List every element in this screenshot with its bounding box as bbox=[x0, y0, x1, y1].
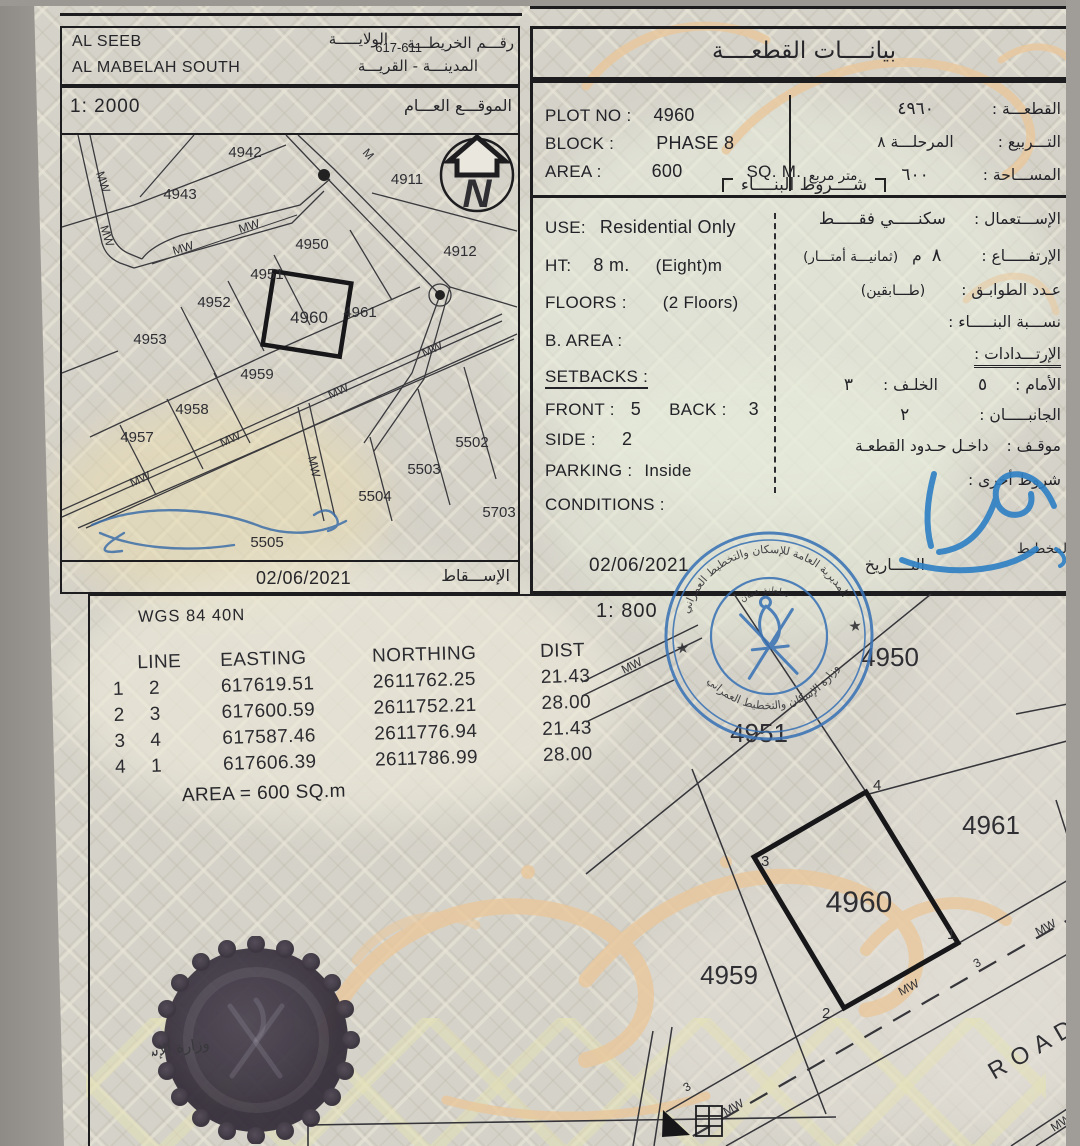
road-label: MW bbox=[1033, 916, 1059, 939]
embossed-seal: وزارة الإسكان bbox=[152, 936, 360, 1144]
site-map-scale: 1: 2000 bbox=[70, 96, 140, 118]
outer-border-top-right bbox=[530, 6, 1078, 9]
plot-label: 5703 bbox=[482, 504, 515, 521]
city-name-en: AL MABELAH SOUTH bbox=[72, 59, 240, 77]
scan-edge-right bbox=[1066, 0, 1080, 1146]
plot-label: 4958 bbox=[175, 401, 208, 418]
location-header-box: AL SEEB الولايـــــة 617-611 رقـــم الخر… bbox=[60, 26, 520, 86]
stamp-star-right: ★ bbox=[848, 617, 863, 635]
front-back-row-ar: الأمام :٥الخلـف :٣ bbox=[783, 375, 1061, 395]
parking-row-en: PARKING :Inside bbox=[545, 461, 815, 481]
scan-edge-top bbox=[0, 0, 1080, 6]
use-value: Residential Only bbox=[600, 217, 736, 237]
use-row-en: USE:Residential Only bbox=[545, 217, 815, 238]
plot-label: 5502 bbox=[455, 434, 488, 451]
site-map-title-ar: الموقـــع العـــام bbox=[404, 96, 512, 115]
use-row-ar: الإســـتعمال :سكنـــــي فقـــــط bbox=[783, 209, 1061, 228]
front-back-row-en: FRONT :5BACK :3 bbox=[545, 399, 815, 420]
road-label: MW bbox=[896, 976, 922, 999]
plot-label-4960: 4960 bbox=[290, 308, 328, 327]
outer-border-top-left bbox=[60, 13, 522, 16]
road-label: MW bbox=[97, 224, 117, 249]
wilaya-name-en: AL SEEB bbox=[72, 33, 142, 51]
plot-no-value: 4960 bbox=[653, 105, 694, 125]
road-label: MW bbox=[619, 654, 645, 676]
scanned-krooki-certificate: { "header_left": { "wilaya_en": "AL SEEB… bbox=[0, 0, 1080, 1146]
oman-emblem-icon bbox=[739, 594, 799, 678]
projection-date: 02/06/2021 bbox=[256, 568, 351, 589]
ht-row-en: HT:8 m.(Eight)m bbox=[545, 255, 815, 276]
svg-text:المديرية العامة للإسكان والتخط: المديرية العامة للإسكان والتخطيط العمران… bbox=[673, 534, 852, 616]
floors-row-en: FLOORS :(2 Floors) bbox=[545, 293, 815, 313]
plot-label: 4950 bbox=[295, 236, 328, 253]
site-map-panel: 1: 2000 الموقـــع العـــام bbox=[60, 86, 520, 594]
svg-text:سلطنة عمان: سلطنة عمان bbox=[738, 584, 792, 605]
stamp-star-left: ★ bbox=[675, 639, 690, 657]
plot-label: 4957 bbox=[120, 429, 153, 446]
side-row-en: SIDE :2 bbox=[545, 429, 815, 450]
building-conditions-title: شــــروط البنــــاء bbox=[533, 175, 1075, 195]
svg-text:وزارة الإسكان والتخطيط العمران: وزارة الإسكان والتخطيط العمراني bbox=[704, 661, 846, 719]
road-label: MW bbox=[721, 1096, 747, 1119]
barea-row-en: B. AREA : bbox=[545, 331, 815, 351]
plan-plot-label: 4959 bbox=[700, 960, 758, 990]
floors-row-ar: عـدد الطوابـق :(طـــابقين) bbox=[783, 281, 1061, 299]
plot-no-row-ar: القطعـــة :٤٩٦٠ bbox=[783, 99, 1061, 119]
plot-label: 4961 bbox=[343, 304, 376, 321]
ministry-stamp: المديرية العامة للإسكان والتخطيط العمران… bbox=[661, 526, 877, 748]
road-label: MW bbox=[93, 170, 113, 195]
corner-number: 1 bbox=[947, 926, 955, 943]
block-value: PHASE 8 bbox=[656, 133, 734, 153]
plot-label: 4959 bbox=[240, 366, 273, 383]
ht-row-ar: الإرتفـــــاع :٨م(ثمانيـــة أمتـــار) bbox=[783, 245, 1061, 266]
stamp-arc-bottom-text: وزارة الإسكان والتخطيط العمراني bbox=[704, 661, 846, 719]
plot-label: 4911 bbox=[391, 171, 423, 188]
plot-label: 4953 bbox=[133, 331, 166, 348]
site-map-drawing: N MW MW MW MW MW MW MW MW MW MW 4942 494… bbox=[62, 135, 517, 528]
road-label: MW bbox=[305, 455, 323, 479]
barea-row-ar: نســـبة البنـــــاء : bbox=[783, 313, 1061, 331]
plot-label: 5504 bbox=[358, 488, 391, 505]
corner-number: 3 bbox=[761, 853, 769, 870]
corner-number: 2 bbox=[822, 1005, 830, 1022]
road-width-mark: 3 bbox=[971, 955, 984, 971]
block-row-en: BLOCK :PHASE 8 bbox=[545, 133, 815, 154]
plot-label: 4942 bbox=[228, 144, 261, 161]
plot-label: 4912 bbox=[443, 243, 476, 260]
projection-label-ar: الإســـقاط bbox=[441, 566, 510, 585]
map-number-label-ar: رقـــم الخريطـــة bbox=[407, 34, 514, 52]
plot-label: 4952 bbox=[197, 294, 230, 311]
stamp-inner-text: سلطنة عمان bbox=[738, 584, 792, 605]
planner-signature bbox=[884, 452, 1080, 597]
svg-text:N: N bbox=[463, 172, 493, 216]
north-arrow-icon: N bbox=[441, 137, 513, 216]
plot-no-row-en: PLOT NO :4960 bbox=[545, 105, 815, 126]
plot-label: 4951 bbox=[250, 266, 283, 283]
plot-data-title-ar: بيانــــات القطعــــة bbox=[533, 29, 1075, 64]
side-row-ar: الجانبـــــان :٢ bbox=[783, 405, 1061, 425]
setbacks-row-ar: الإرتـــدادات : bbox=[783, 345, 1061, 363]
document-paper: AL SEEB الولايـــــة 617-611 رقـــم الخر… bbox=[26, 0, 1080, 1146]
road-width-mark: 3 bbox=[681, 1079, 694, 1095]
plot-label: 4943 bbox=[163, 186, 196, 203]
road-label: MW bbox=[171, 238, 196, 258]
road-triangle-marker bbox=[662, 1110, 690, 1137]
plan-plot-label-4960: 4960 bbox=[826, 886, 893, 919]
conditions-row-en: CONDITIONS : bbox=[545, 495, 815, 515]
plot-data-title-box: بيانــــات القطعــــة bbox=[530, 26, 1078, 80]
site-map-footer: 02/06/2021 الإســـقاط bbox=[60, 560, 518, 596]
pen-scribble bbox=[92, 510, 346, 552]
plan-plot-label: 4961 bbox=[962, 810, 1020, 840]
city-label-ar: المدينـــة - القريـــة bbox=[358, 57, 478, 75]
block-row-ar: التـــربيع :المرحلـــة ٨ bbox=[783, 133, 1061, 151]
stamp-arc-top-text: المديرية العامة للإسكان والتخطيط العمران… bbox=[673, 534, 852, 616]
corner-number: 4 bbox=[873, 777, 881, 794]
setbacks-row-en: SETBACKS : bbox=[545, 367, 815, 387]
plot-label: 5503 bbox=[407, 461, 440, 478]
plot-label: 5505 bbox=[250, 534, 283, 551]
